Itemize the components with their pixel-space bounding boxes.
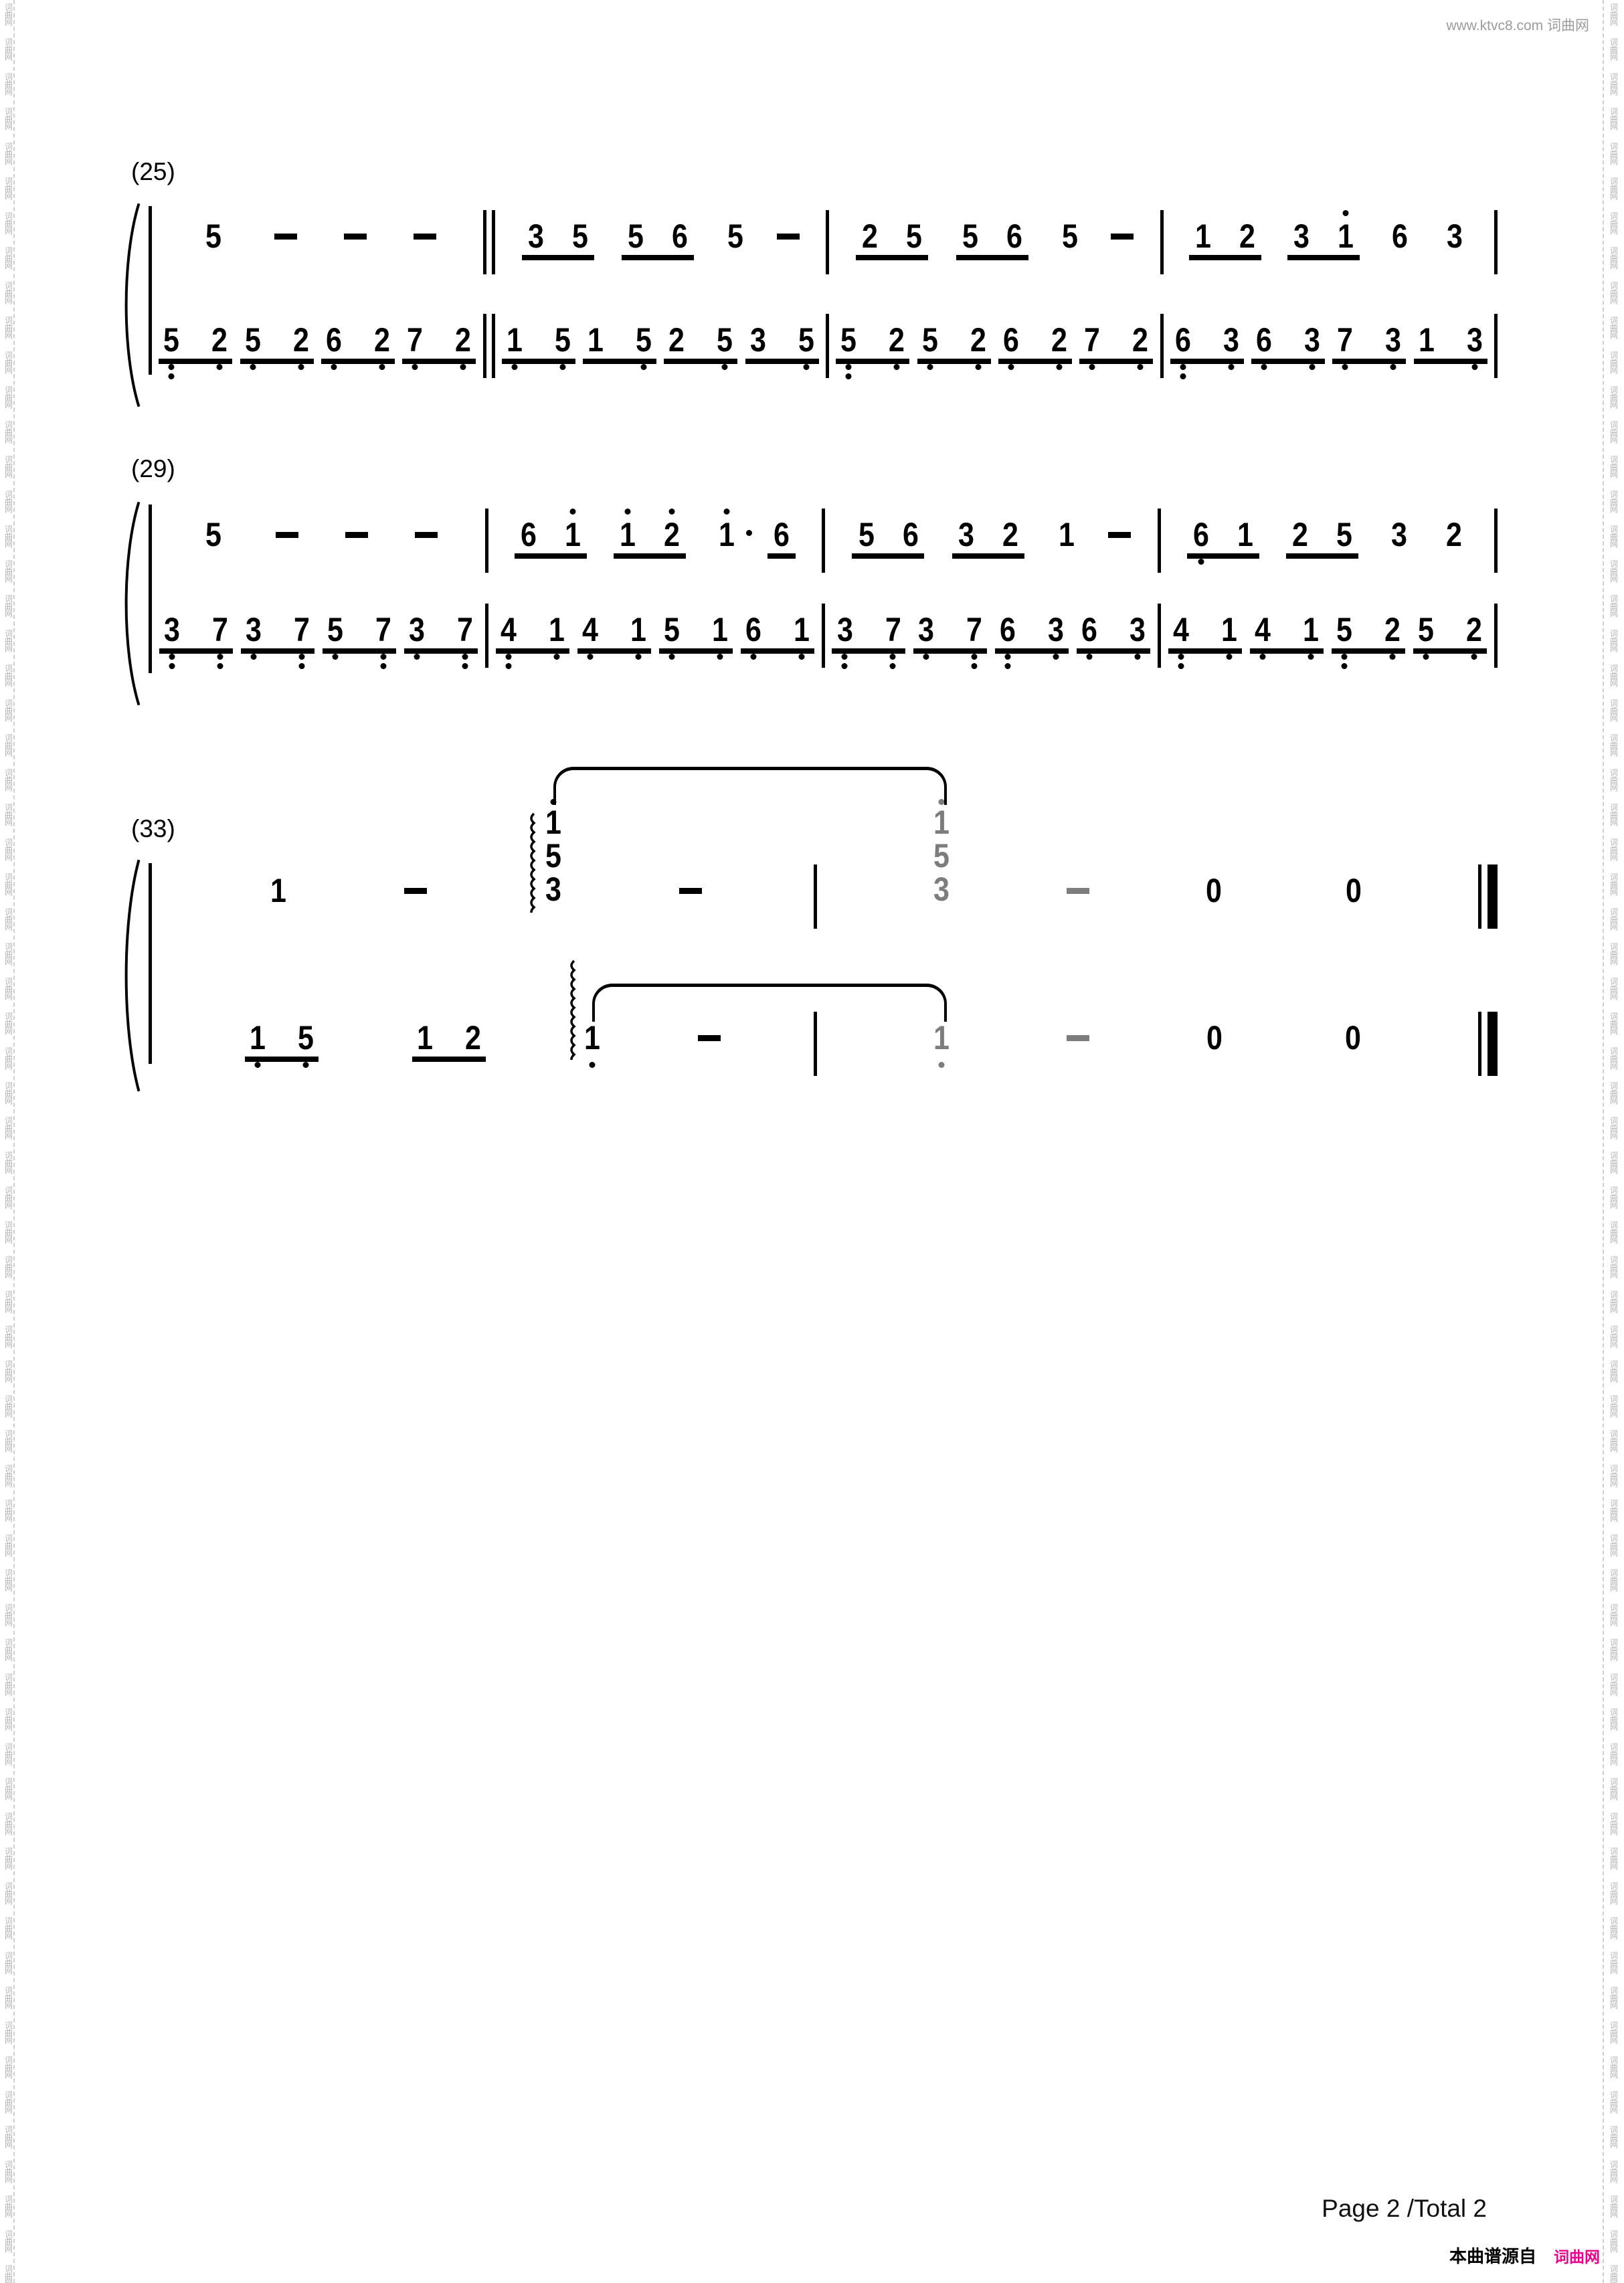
note-0: 0 (1340, 1022, 1366, 1053)
octave-dot-below (927, 364, 933, 370)
note-7: 7 (288, 614, 315, 645)
barline (1494, 314, 1498, 378)
note-digit: 7 (1084, 325, 1100, 355)
note-digit: 5 (858, 519, 874, 550)
beamed-pair: 41 (1168, 614, 1243, 645)
note-5: 5 (711, 325, 738, 355)
beamed-pair: 62 (321, 325, 395, 355)
note-digit: 1 (1419, 325, 1435, 355)
note-1: 1 (582, 325, 609, 355)
note-6: 6 (321, 325, 347, 355)
note-2: 2 (206, 325, 233, 355)
note-digit: 6 (672, 221, 688, 252)
eighth-beam (622, 255, 694, 260)
eighth-beam (741, 648, 814, 654)
octave-dot-below (1005, 654, 1011, 660)
note-1: 1 (501, 325, 528, 355)
eighth-beam (1079, 359, 1153, 364)
measure: 15300 (817, 875, 1479, 906)
octave-dot-below (1178, 663, 1184, 669)
note-3: 3 (159, 614, 185, 645)
beamed-pair: 61 (740, 614, 815, 645)
note-digit: 6 (521, 519, 537, 550)
note-digit: 5 (636, 325, 652, 355)
note-5: 5 (1055, 221, 1085, 252)
octave-dot-below (1342, 663, 1348, 669)
note-digit: 3 (1293, 221, 1310, 252)
beamed-pair: 52 (1413, 614, 1487, 645)
octave-dot-below (894, 364, 900, 370)
octave-dot-below (1342, 654, 1348, 660)
note-digit: 3 (545, 873, 561, 906)
eighth-beam (1413, 648, 1487, 654)
note-2: 2 (657, 519, 687, 550)
octave-dot-below (798, 654, 804, 660)
note-digit: 0 (1206, 1022, 1223, 1053)
beamed-pair: 25 (663, 325, 738, 355)
beamed-pair: 57 (322, 614, 397, 645)
note-digit: 5 (962, 221, 978, 252)
note-digit: 5 (933, 839, 950, 873)
note-digit: 1 (417, 1022, 433, 1053)
beamed-pair: 41 (1249, 614, 1324, 645)
note-digit: 3 (1304, 325, 1320, 355)
chord-note-1: 1 (539, 806, 568, 839)
note-digit: 3 (1130, 614, 1146, 645)
eighth-beam (1170, 359, 1244, 364)
octave-dot-below (505, 663, 511, 669)
note-digit: 5 (727, 221, 743, 252)
note-digit: 3 (1467, 325, 1483, 355)
eighth-beam (1287, 255, 1360, 260)
eighth-beam (404, 648, 478, 654)
octave-dot-below (1198, 559, 1204, 565)
measure: 37376363 (825, 614, 1158, 645)
note-2: 2 (1127, 325, 1154, 355)
note-digit: 5 (798, 325, 814, 355)
duration-dash (414, 234, 436, 240)
beamed-pair: 52 (240, 325, 314, 355)
duration-dash (777, 234, 800, 240)
double-barline (483, 210, 495, 274)
octave-dot-below (412, 364, 418, 370)
note-digit: 3 (246, 614, 262, 645)
augmentation-dot (746, 530, 752, 536)
octave-dot-below (298, 654, 304, 660)
note-6: 6 (895, 519, 925, 550)
note-digit: 2 (465, 1022, 481, 1053)
note-6: 6 (994, 614, 1021, 645)
octave-dot-below (846, 373, 852, 379)
note-digit: 2 (1051, 325, 1067, 355)
note-6: 6 (1186, 519, 1216, 550)
duration-dash (345, 532, 368, 538)
octave-dot-below (975, 364, 981, 370)
note-1: 1 (558, 519, 588, 550)
note-digit: 1 (794, 614, 810, 645)
note-digit: 1 (933, 806, 950, 839)
note-4: 4 (577, 614, 604, 645)
beamed-pair: 73 (1332, 325, 1407, 355)
beamed-pair: 63 (1076, 614, 1151, 645)
note-1: 1 (707, 614, 733, 645)
beamed-pair: 63 (994, 614, 1069, 645)
note-digit: 3 (1223, 325, 1239, 355)
measure: 56321 (825, 519, 1158, 550)
octave-dot-below (972, 663, 978, 669)
note-digit: 5 (664, 614, 680, 645)
note-digit: 3 (1447, 221, 1463, 252)
octave-dot-below (1180, 373, 1186, 379)
beamed-pair: 63 (1251, 325, 1326, 355)
note-digit: 2 (1384, 614, 1401, 645)
octave-dot-below (298, 364, 304, 370)
octave-dot-below (635, 654, 641, 660)
note-digit: 7 (457, 614, 473, 645)
note-3: 3 (1218, 325, 1245, 355)
note-3: 3 (1461, 325, 1488, 355)
measure: 35565 (495, 221, 826, 252)
note-1: 1 (1052, 519, 1081, 550)
octave-dot-below (1390, 654, 1396, 660)
eighth-beam (664, 359, 737, 364)
octave-dot-below (1087, 654, 1093, 660)
beamed-pair: 51 (658, 614, 733, 645)
system-brace (118, 855, 146, 1096)
octave-dot-below (250, 654, 256, 660)
beamed-pair: 35 (745, 325, 820, 355)
octave-dot-below (414, 654, 420, 660)
eighth-beam (614, 553, 686, 559)
eighth-beam (995, 648, 1069, 654)
note-digit: 2 (970, 325, 986, 355)
note-digit: 4 (501, 614, 517, 645)
note-5: 5 (158, 325, 185, 355)
note-digit: 5 (922, 325, 938, 355)
octave-dot-above (1343, 210, 1349, 216)
note-digit: 4 (582, 614, 598, 645)
octave-dot-below (169, 373, 175, 379)
octave-dot-below (379, 364, 385, 370)
eighth-beam (323, 648, 396, 654)
note-7: 7 (1332, 325, 1358, 355)
eighth-beam (856, 255, 928, 260)
beamed-pair: 52 (917, 325, 992, 355)
beamed-pair: 12 (412, 1022, 486, 1053)
source-credit: 本曲谱源自 词曲网 (1449, 2243, 1600, 2268)
beamed-pair: 61 (1186, 519, 1260, 550)
note-5: 5 (658, 614, 685, 645)
note-digit: 5 (298, 1022, 314, 1053)
beamed-pair: 52 (1331, 614, 1406, 645)
duration-dash (1108, 532, 1131, 538)
note-1: 1 (412, 1022, 438, 1053)
octave-dot-below (1308, 654, 1314, 660)
note-digit: 1 (1303, 614, 1319, 645)
octave-dot-below (169, 663, 175, 669)
staff-row-bottom: 37375737414151613737636341415252 (152, 614, 1498, 645)
note-3: 3 (831, 614, 858, 645)
note-2: 2 (1233, 221, 1262, 252)
note-7: 7 (207, 614, 234, 645)
note-digit: 1 (549, 614, 565, 645)
note-1: 1 (1216, 614, 1243, 645)
octave-dot-below (1261, 364, 1267, 370)
note-1: 1 (613, 519, 642, 550)
note-5: 5 (721, 221, 750, 252)
duration-dash (1111, 234, 1134, 240)
measure: 41415161 (488, 614, 822, 645)
note-5: 5 (565, 221, 595, 252)
beamed-pair: 56 (851, 519, 925, 550)
duration-dash (679, 888, 702, 894)
octave-dot-below (511, 364, 517, 370)
system-label: (33) (131, 815, 175, 843)
octave-dot-below (1138, 364, 1144, 370)
note-digit: 5 (1062, 221, 1078, 252)
note-7: 7 (879, 614, 906, 645)
measure: 1153 (152, 875, 814, 906)
octave-dot-above (723, 509, 729, 515)
note-digit: 3 (1391, 519, 1407, 550)
octave-dot-below (169, 364, 175, 370)
octave-dot-below (890, 663, 896, 669)
note-1: 1 (928, 1022, 955, 1053)
eighth-beam (1168, 648, 1242, 654)
note-6: 6 (998, 325, 1024, 355)
octave-dot-below (1227, 654, 1233, 660)
note-5: 5 (240, 325, 266, 355)
note-2: 2 (855, 221, 885, 252)
eighth-beam (583, 359, 656, 364)
note-5: 5 (899, 221, 929, 252)
beamed-pair: 62 (998, 325, 1073, 355)
barline (1494, 210, 1498, 274)
octave-dot-below (460, 364, 466, 370)
note-digit: 6 (1003, 325, 1019, 355)
note-2: 2 (288, 325, 314, 355)
note-5: 5 (1330, 519, 1359, 550)
note-6: 6 (1251, 325, 1277, 355)
note-digit: 6 (774, 519, 790, 550)
octave-dot-below (1228, 364, 1234, 370)
beamed-pair: 41 (495, 614, 570, 645)
chord-note-5: 5 (927, 839, 956, 873)
note-digit: 5 (906, 221, 922, 252)
note-7: 7 (401, 325, 428, 355)
measure: 612532 (1161, 519, 1494, 550)
note-digit: 6 (1256, 325, 1272, 355)
note-2: 2 (369, 325, 395, 355)
octave-dot-below (255, 1062, 261, 1068)
eighth-beam (240, 359, 314, 364)
note-7: 7 (452, 614, 478, 645)
beamed-pair: 37 (240, 614, 315, 645)
note-digit: 4 (1255, 614, 1271, 645)
note-2: 2 (1439, 519, 1469, 550)
note-5: 5 (621, 221, 650, 252)
note-2: 2 (996, 519, 1025, 550)
octave-dot-below (462, 663, 468, 669)
system-label: (25) (131, 158, 175, 186)
note-3: 3 (913, 614, 939, 645)
note-digit: 1 (250, 1022, 266, 1053)
note-5: 5 (630, 325, 657, 355)
octave-dot-below (587, 654, 593, 660)
eighth-beam (245, 1057, 319, 1062)
octave-dot-below (559, 364, 565, 370)
note-6: 6 (1170, 325, 1196, 355)
note-0: 0 (1199, 875, 1229, 906)
octave-dot-below (380, 663, 386, 669)
staff-row-top: 115315300 (152, 875, 1498, 906)
beamed-pair: 13 (1413, 325, 1488, 355)
note-digit: 0 (1346, 875, 1362, 906)
note-digit: 7 (1337, 325, 1353, 355)
duration-dash (698, 1035, 721, 1041)
chord: 153 (927, 875, 956, 906)
arpeggio-wavy-line (567, 960, 577, 1060)
chord-stack: 153 (539, 806, 568, 906)
octave-dot-below (803, 364, 809, 370)
measure: 611216 (488, 519, 822, 550)
note-5: 5 (835, 325, 862, 355)
system-brace (118, 199, 146, 411)
note-digit: 1 (584, 1022, 600, 1053)
octave-dot-below (923, 654, 929, 660)
octave-dot-below (505, 654, 511, 660)
octave-dot-below (380, 654, 386, 660)
eighth-beam (745, 359, 819, 364)
note-digit: 5 (205, 519, 221, 550)
note-digit: 5 (555, 325, 571, 355)
eighth-beam (917, 359, 991, 364)
measure: 123163 (1164, 221, 1495, 252)
octave-dot-below (1310, 364, 1316, 370)
octave-dot-above (668, 509, 674, 515)
page-number: Page 2 /Total 2 (1322, 2195, 1487, 2223)
octave-dot-below (331, 364, 337, 370)
note-digit: 1 (507, 325, 523, 355)
note-6: 6 (665, 221, 695, 252)
note-3: 3 (240, 614, 267, 645)
note-digit: 6 (1175, 325, 1191, 355)
note-2: 2 (450, 325, 476, 355)
octave-dot-below (1471, 654, 1477, 660)
octave-dot-below (332, 654, 338, 660)
note-digit: 5 (327, 614, 343, 645)
note-5: 5 (322, 614, 349, 645)
note-2: 2 (1285, 519, 1315, 550)
note-digit: 3 (1048, 614, 1064, 645)
note-6: 6 (740, 614, 767, 645)
octave-dot-below (890, 654, 896, 660)
note-digit: 3 (528, 221, 544, 252)
note-digit: 2 (1466, 614, 1482, 645)
beamed-pair: 72 (1079, 325, 1154, 355)
note-digit: 1 (620, 519, 636, 550)
octave-dot-below (1056, 364, 1062, 370)
eighth-beam (241, 648, 314, 654)
note-digit: 3 (409, 614, 425, 645)
double-barline (483, 314, 495, 378)
measure: 5 (152, 221, 483, 252)
note-5: 5 (199, 519, 228, 550)
note-3: 3 (745, 325, 772, 355)
beamed-pair: 52 (158, 325, 233, 355)
chord-note-3: 3 (927, 873, 956, 906)
measure: 100 (817, 1022, 1479, 1053)
octave-dot-below (1390, 364, 1396, 370)
note-digit: 7 (885, 614, 901, 645)
note-digit: 3 (1385, 325, 1401, 355)
duration-dash (1067, 1035, 1089, 1041)
duration-dash (274, 234, 297, 240)
note-digit: 1 (565, 519, 581, 550)
staff-row-top: 561121656321612532 (152, 519, 1498, 550)
final-barline (1478, 1012, 1498, 1076)
note-7: 7 (370, 614, 397, 645)
note-digit: 5 (1418, 614, 1434, 645)
note-digit: 6 (902, 519, 918, 550)
eighth-beam (836, 359, 909, 364)
eighth-beam (577, 648, 651, 654)
note-6: 6 (1000, 221, 1029, 252)
sheet-music-page: 词曲网词曲网词曲网词曲网词曲网词曲网词曲网词曲网词曲网词曲网词曲网词曲网词曲网词… (0, 0, 1624, 2283)
note-3: 3 (1440, 221, 1469, 252)
octave-dot-below (298, 663, 304, 669)
octave-dot-below (1471, 364, 1477, 370)
note-digit: 5 (245, 325, 261, 355)
beamed-pair: 15 (244, 1022, 319, 1053)
note-digit: 1 (1195, 221, 1211, 252)
note-digit: 2 (293, 325, 309, 355)
duration-dash (404, 888, 427, 894)
note-digit: 1 (1059, 519, 1075, 550)
beamed-pair: 37 (403, 614, 478, 645)
note-digit: 2 (211, 325, 228, 355)
note-1: 1 (712, 519, 741, 550)
octave-dot-below (842, 654, 848, 660)
staff-row-top: 53556525565123163 (152, 221, 1498, 252)
note-digit: 2 (668, 325, 685, 355)
note-3: 3 (1384, 519, 1414, 550)
note-digit: 2 (1446, 519, 1462, 550)
duration-dash (415, 532, 438, 538)
beamed-pair: 56 (956, 221, 1029, 252)
note-0: 0 (1339, 875, 1368, 906)
octave-dot-below (217, 654, 223, 660)
note-3: 3 (1299, 325, 1326, 355)
note-3: 3 (521, 221, 551, 252)
beamed-pair: 41 (577, 614, 652, 645)
note-5: 5 (851, 519, 881, 550)
measure: 15152535 (495, 325, 826, 355)
note-7: 7 (1079, 325, 1105, 355)
octave-dot-below (1178, 654, 1184, 660)
eighth-beam (952, 553, 1024, 559)
chord-stack: 153 (927, 806, 956, 906)
note-1: 1 (1188, 221, 1218, 252)
octave-dot-below (1005, 663, 1011, 669)
note-digit: 0 (1345, 1022, 1361, 1053)
chord: 153 (539, 875, 568, 906)
eighth-beam (321, 359, 395, 364)
eighth-beam (1332, 648, 1405, 654)
octave-dot-below (1008, 364, 1014, 370)
source-site-link[interactable]: 词曲网 (1554, 2244, 1600, 2267)
eighth-beam (502, 359, 575, 364)
